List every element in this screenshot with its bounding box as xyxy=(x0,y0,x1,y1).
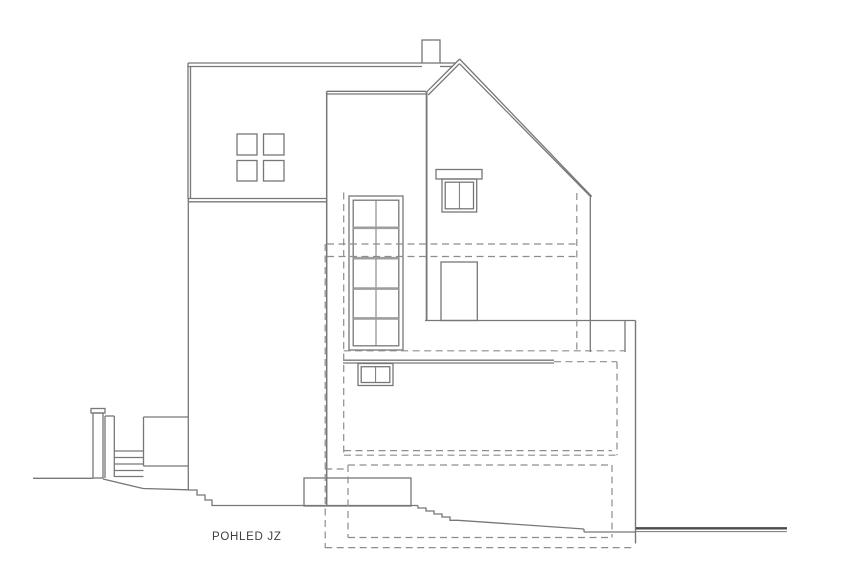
rear-wing-window-1 xyxy=(237,134,257,155)
wall-base-steps xyxy=(188,490,218,506)
roof-left-slope-inner xyxy=(428,64,459,95)
ground-slope-left xyxy=(103,479,188,490)
drawing-title: POHLED JZ xyxy=(212,531,282,543)
rear-wing-window-2 xyxy=(264,134,285,155)
entrance-door xyxy=(441,262,477,321)
roof-left-slope xyxy=(426,59,460,93)
ground-slope-right xyxy=(458,520,584,529)
porch-base xyxy=(304,478,411,506)
rear-wing-window-3 xyxy=(237,161,257,182)
roof-right-slope-inner xyxy=(460,64,590,196)
roof-right-slope xyxy=(460,59,592,197)
elevation-svg xyxy=(0,0,849,566)
chimney xyxy=(422,40,440,63)
gable-window-lintel xyxy=(436,170,482,180)
elevation-sheet: POHLED JZ xyxy=(0,0,849,566)
terrain-steps xyxy=(418,506,458,521)
gate-post xyxy=(93,413,103,478)
rear-wing-window-4 xyxy=(264,161,285,182)
gate-post-cap xyxy=(91,409,105,414)
